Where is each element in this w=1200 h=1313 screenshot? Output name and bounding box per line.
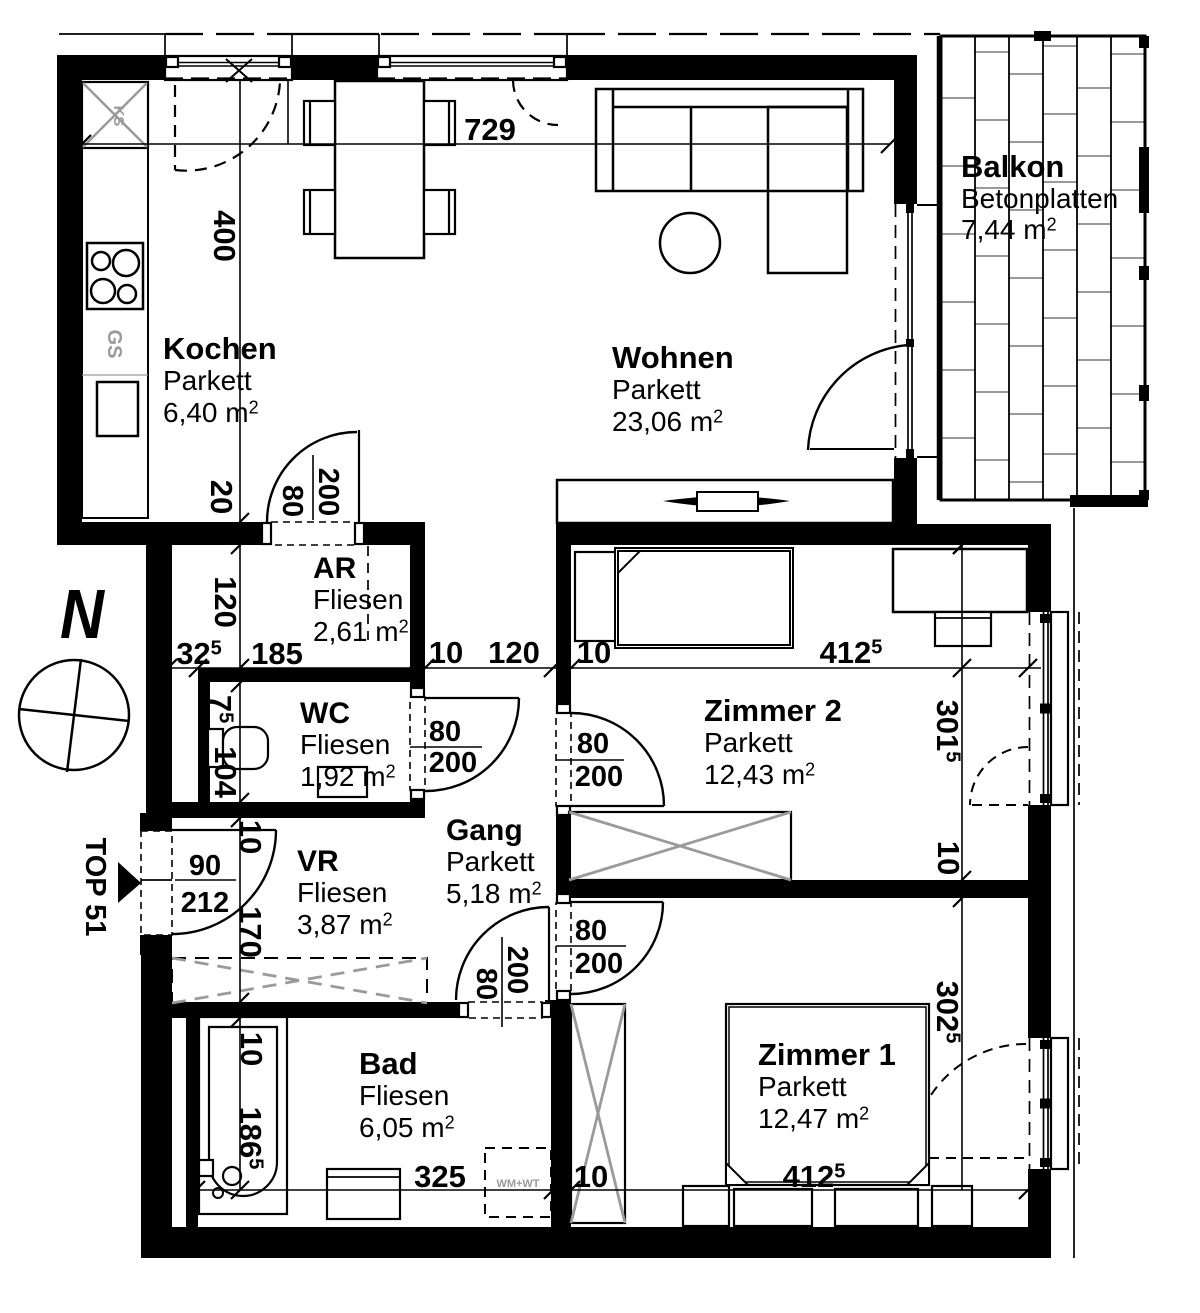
svg-text:Fliesen: Fliesen	[297, 877, 387, 908]
svg-text:Bad: Bad	[359, 1046, 418, 1081]
svg-text:10: 10	[234, 1032, 269, 1066]
svg-text:Parkett: Parkett	[612, 374, 701, 405]
svg-text:Zimmer 1: Zimmer 1	[758, 1037, 896, 1072]
svg-text:Gang: Gang	[446, 814, 523, 847]
svg-text:Parkett: Parkett	[163, 365, 252, 396]
svg-text:200: 200	[501, 946, 533, 994]
svg-text:3,87 m2: 3,87 m2	[297, 909, 393, 940]
svg-text:Fliesen: Fliesen	[313, 584, 403, 615]
svg-text:185: 185	[251, 636, 303, 671]
svg-text:23,06 m2: 23,06 m2	[612, 406, 723, 437]
svg-text:GS: GS	[103, 330, 125, 359]
svg-text:Parkett: Parkett	[446, 846, 535, 877]
svg-text:5,18 m2: 5,18 m2	[446, 878, 542, 909]
svg-text:80: 80	[276, 485, 308, 517]
svg-text:10: 10	[429, 635, 463, 670]
svg-text:80: 80	[575, 915, 607, 947]
svg-text:6,05 m2: 6,05 m2	[359, 1112, 455, 1143]
svg-text:200: 200	[312, 468, 344, 516]
svg-text:120: 120	[488, 635, 540, 670]
svg-text:7,44 m2: 7,44 m2	[961, 214, 1057, 245]
svg-text:WC: WC	[300, 697, 350, 730]
svg-text:200: 200	[575, 761, 623, 793]
svg-text:80: 80	[470, 968, 502, 1000]
svg-text:Zimmer 2: Zimmer 2	[704, 693, 842, 728]
svg-text:80: 80	[429, 716, 461, 748]
svg-text:Fliesen: Fliesen	[300, 729, 390, 760]
svg-text:WM+WT: WM+WT	[496, 1178, 539, 1190]
svg-text:Parkett: Parkett	[758, 1071, 847, 1102]
svg-text:12,47 m2: 12,47 m2	[758, 1103, 869, 1134]
svg-text:90: 90	[189, 850, 221, 882]
svg-text:Wohnen: Wohnen	[612, 340, 734, 375]
svg-text:170: 170	[233, 906, 268, 958]
svg-text:104: 104	[208, 746, 243, 798]
svg-text:Kochen: Kochen	[163, 331, 277, 366]
svg-text:Parkett: Parkett	[704, 727, 793, 758]
svg-text:200: 200	[575, 948, 623, 980]
svg-text:KS: KS	[110, 106, 127, 127]
svg-text:325: 325	[414, 1159, 466, 1194]
svg-text:400: 400	[207, 210, 242, 262]
svg-text:1,92 m2: 1,92 m2	[300, 761, 396, 792]
svg-text:TOP 51: TOP 51	[79, 838, 111, 937]
svg-text:VR: VR	[297, 845, 339, 878]
svg-text:N: N	[60, 575, 105, 653]
svg-text:10: 10	[577, 635, 611, 670]
svg-text:12,43 m2: 12,43 m2	[704, 759, 815, 790]
svg-text:729: 729	[464, 112, 516, 147]
svg-text:AR: AR	[313, 552, 357, 585]
svg-text:6,40 m2: 6,40 m2	[163, 397, 259, 428]
svg-text:20: 20	[204, 480, 239, 514]
svg-text:Balkon: Balkon	[961, 149, 1064, 184]
svg-text:Betonplatten: Betonplatten	[961, 183, 1118, 214]
svg-text:80: 80	[577, 728, 609, 760]
svg-text:10: 10	[233, 820, 268, 854]
svg-text:120: 120	[208, 576, 243, 628]
svg-text:Fliesen: Fliesen	[359, 1080, 449, 1111]
svg-text:200: 200	[429, 747, 477, 779]
svg-text:2,61 m2: 2,61 m2	[313, 616, 409, 647]
svg-text:212: 212	[181, 887, 229, 919]
svg-text:10: 10	[574, 1159, 608, 1194]
svg-text:10: 10	[931, 841, 966, 875]
